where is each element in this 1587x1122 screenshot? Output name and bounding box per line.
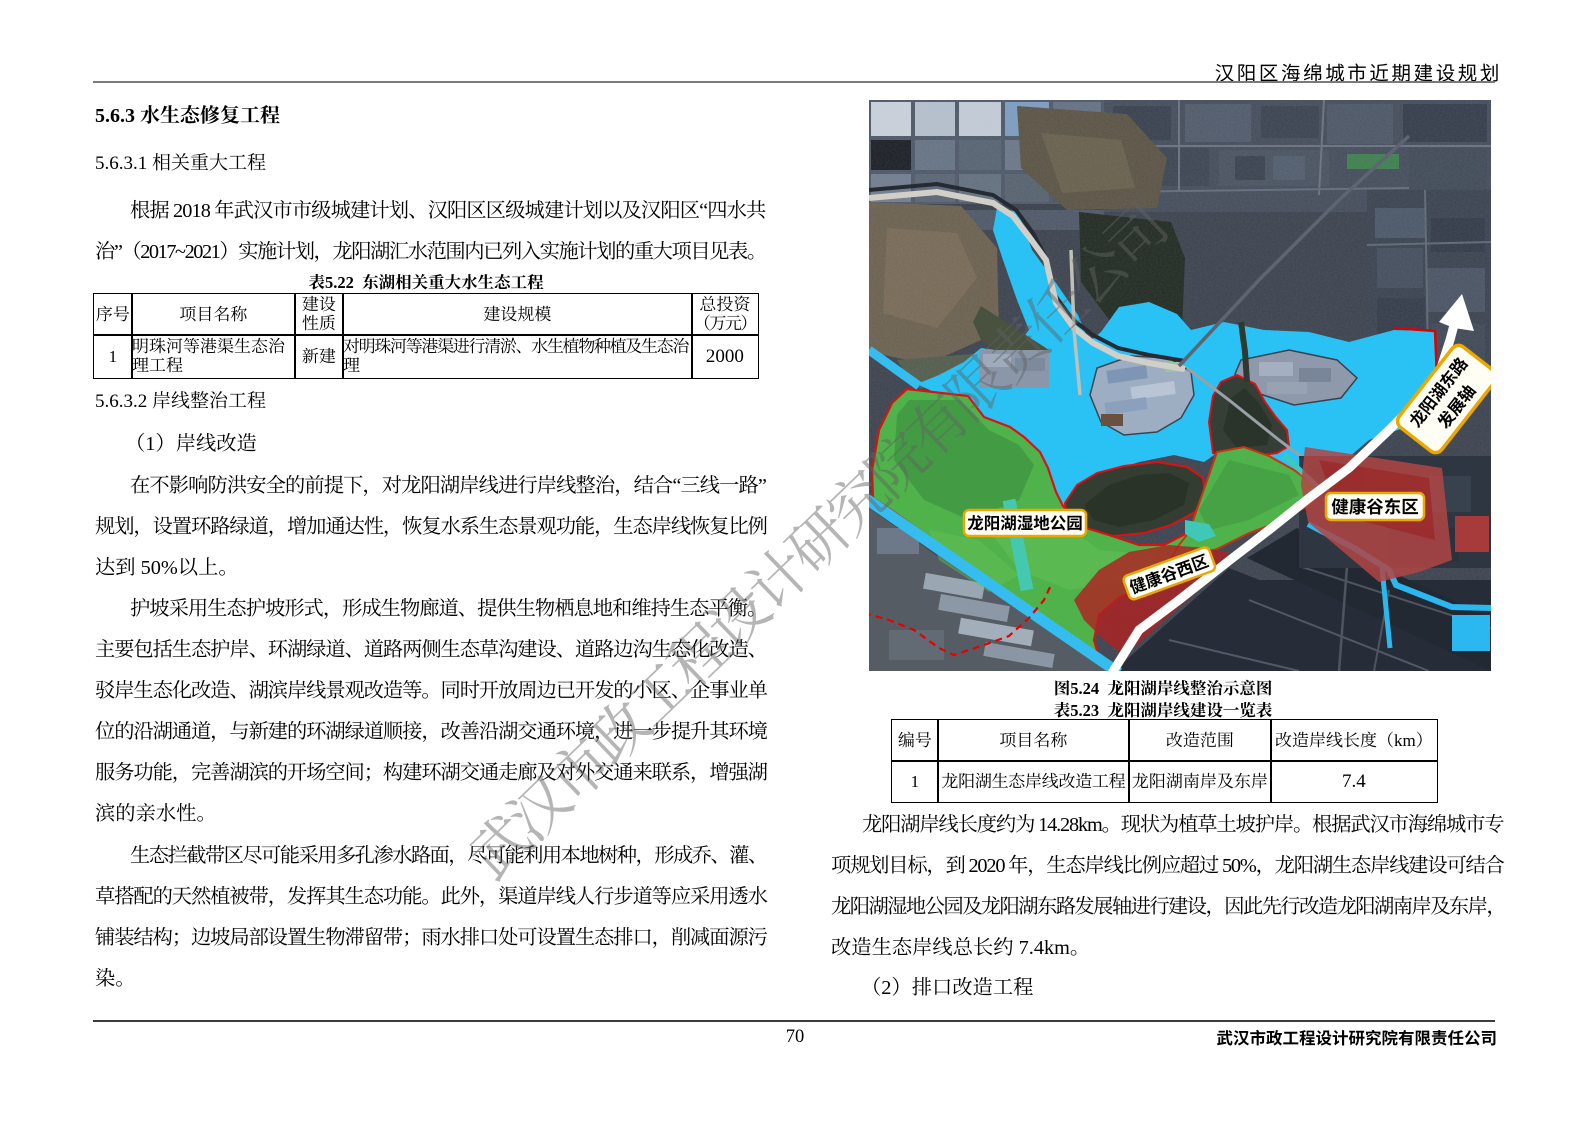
svg-text:龙阳湖湿地公园: 龙阳湖湿地公园: [967, 510, 1083, 534]
svg-text:健康谷东区: 健康谷东区: [1331, 494, 1419, 519]
